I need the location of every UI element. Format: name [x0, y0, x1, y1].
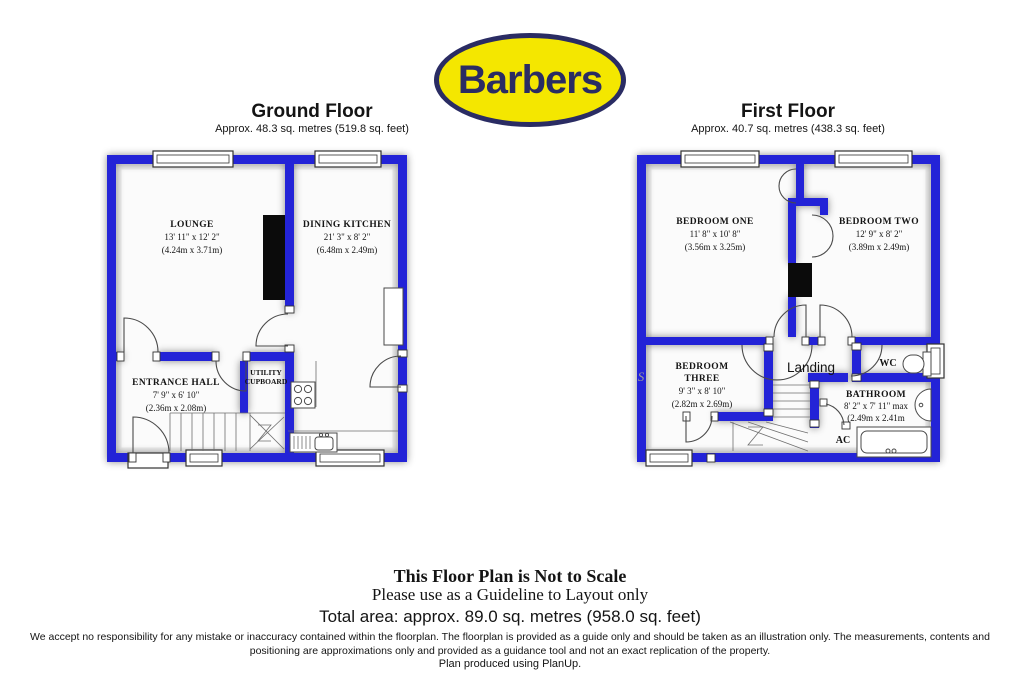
utility-label-line1: UTILITY	[250, 368, 282, 377]
bathroom-imperial: 8' 2" x 7' 11" max	[844, 401, 909, 411]
bedroom-one-metric: (3.56m x 3.25m)	[685, 242, 746, 252]
first-floor-header: First Floor Approx. 40.7 sq. metres (438…	[638, 101, 938, 137]
ground-floor-title: Ground Floor	[162, 101, 462, 122]
guideline-note: Please use as a Guideline to Layout only	[0, 585, 1020, 605]
landing-label: Landing	[787, 360, 835, 375]
bath-tap	[892, 449, 896, 453]
entrance-hall-label: ENTRANCE HALL	[132, 378, 220, 388]
not-to-scale-note: This Floor Plan is Not to Scale	[0, 566, 1020, 587]
disclaimer: We accept no responsibility for any mist…	[5, 630, 1015, 658]
total-area: Total area: approx. 89.0 sq. metres (958…	[0, 607, 1020, 627]
ground-floor-header: Ground Floor Approx. 48.3 sq. metres (51…	[162, 101, 462, 137]
lounge-metric: (4.24m x 3.71m)	[162, 245, 223, 255]
entrance-hall-imperial: 7' 9" x 6' 10"	[153, 390, 200, 400]
bedroom-one-imperial: 11' 8" x 10' 8"	[690, 229, 741, 239]
first-floor-title: First Floor	[638, 101, 938, 122]
dining-kitchen-label: DINING KITCHEN	[303, 220, 391, 230]
basin-tap	[919, 403, 923, 407]
ground-floor-subtitle: Approx. 48.3 sq. metres (519.8 sq. feet)	[162, 122, 462, 137]
dining-kitchen-metric: (6.48m x 2.49m)	[317, 245, 378, 255]
first-floor-chimney	[788, 263, 812, 297]
barbers-logo: Barbers	[434, 33, 626, 127]
ground-floor-chimney	[263, 215, 285, 300]
bedroom-two-label: BEDROOM TWO	[839, 217, 919, 227]
ground-floor-plan: LOUNGE 13' 11" x 12' 2" (4.24m x 3.71m) …	[100, 145, 430, 485]
bedroom-three-imperial: 9' 3" x 8' 10"	[679, 386, 726, 396]
bathroom-label: BATHROOM	[846, 390, 906, 400]
bathroom-metric: (2.49m x 2.41m	[847, 413, 905, 423]
utility-label-line2: CUPBOARD	[245, 377, 288, 386]
entrance-hall-metric: (2.36m x 2.08m)	[146, 403, 207, 413]
first-floor-subtitle: Approx. 40.7 sq. metres (438.3 sq. feet)	[638, 122, 938, 137]
dining-kitchen-imperial: 21' 3" x 8' 2"	[324, 232, 371, 242]
bedroom-three-label2: THREE	[684, 374, 719, 384]
produced-by-note: Plan produced using PlanUp.	[0, 658, 1020, 670]
bedroom-three-label1: BEDROOM	[676, 362, 729, 372]
kitchen-unit	[384, 288, 403, 345]
airing-cupboard-label: AC	[836, 435, 850, 446]
floorplan-page: Barbers Ground Floor Approx. 48.3 sq. me…	[0, 0, 1020, 680]
bedroom-two-imperial: 12' 9" x 8' 2"	[856, 229, 903, 239]
wc-label: WC	[879, 358, 896, 369]
bedroom-three-metric: (2.82m x 2.69m)	[672, 399, 733, 409]
bath-tap	[886, 449, 890, 453]
hob	[291, 382, 315, 408]
bedroom-one-label: BEDROOM ONE	[676, 217, 754, 227]
barbers-logo-text: Barbers	[458, 58, 602, 103]
watermark-s: S	[638, 369, 645, 384]
lounge-label: LOUNGE	[170, 220, 214, 230]
toilet-bowl	[903, 355, 924, 373]
first-floor-plan: BEDROOM ONE 11' 8" x 10' 8" (3.56m x 3.2…	[630, 145, 960, 485]
sink-bowl	[315, 437, 333, 450]
bedroom-two-metric: (3.89m x 2.49m)	[849, 242, 910, 252]
lounge-imperial: 13' 11" x 12' 2"	[164, 232, 220, 242]
